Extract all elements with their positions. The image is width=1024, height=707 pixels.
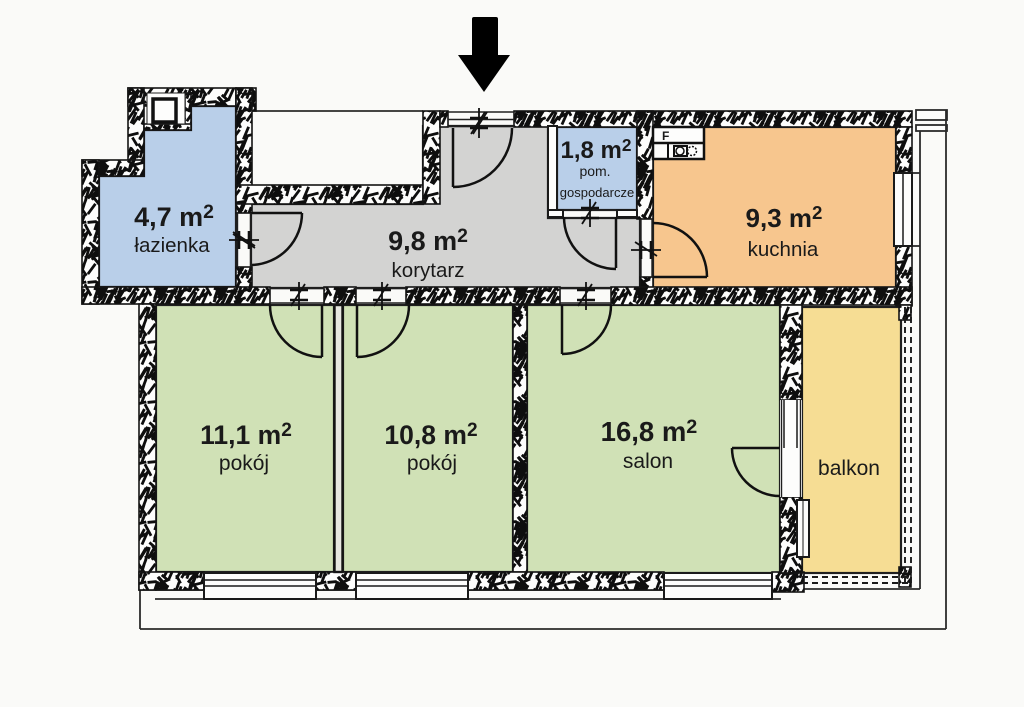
svg-text:9,3 m2: 9,3 m2 (746, 202, 823, 233)
svg-text:1,8 m2: 1,8 m2 (561, 135, 632, 164)
svg-text:gospodarcze: gospodarcze (560, 185, 634, 200)
svg-text:16,8 m2: 16,8 m2 (601, 416, 698, 447)
svg-text:kuchnia: kuchnia (748, 238, 819, 261)
svg-text:9,8 m2: 9,8 m2 (388, 225, 468, 256)
svg-text:4,7 m2: 4,7 m2 (134, 201, 214, 232)
svg-text:łazienka: łazienka (134, 234, 210, 257)
svg-text:F: F (662, 129, 669, 143)
svg-text:pokój: pokój (219, 452, 269, 475)
svg-text:pokój: pokój (407, 452, 457, 475)
svg-text:korytarz: korytarz (392, 259, 465, 282)
svg-text:10,8 m2: 10,8 m2 (384, 420, 477, 450)
svg-text:11,1 m2: 11,1 m2 (200, 420, 292, 450)
svg-text:balkon: balkon (818, 457, 880, 480)
svg-text:pom.: pom. (579, 163, 610, 179)
svg-text:salon: salon (623, 450, 673, 473)
